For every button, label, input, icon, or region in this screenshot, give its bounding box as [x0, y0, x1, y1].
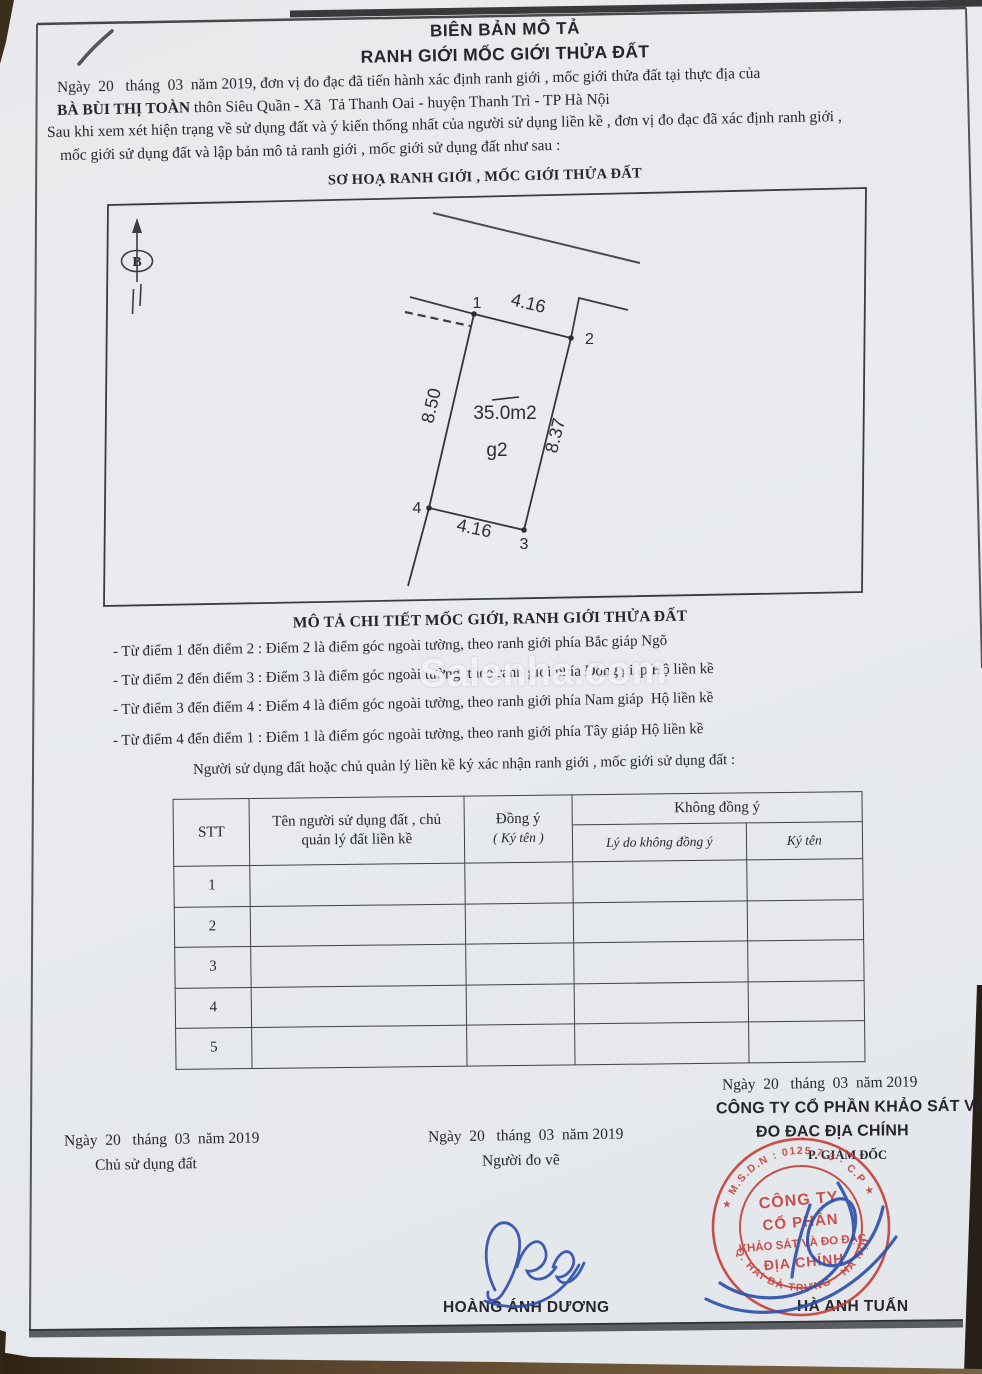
surveyor-signature-ink	[465, 1205, 590, 1315]
company-name-line1: CÔNG TY CỔ PHẦN KHẢO SÁT VÀ	[716, 1098, 982, 1119]
col-name-line1: Tên người sử dụng đất , chủ	[272, 812, 441, 830]
table-row-5: 5	[176, 1021, 865, 1069]
cell-name	[251, 985, 466, 1028]
neighbour-corner-line	[571, 298, 628, 338]
cell-reason	[575, 1022, 749, 1064]
parcel-id-label: g2	[486, 440, 507, 461]
col-name-line2: quản lý đất liền kề	[301, 831, 412, 848]
cell-agree	[465, 902, 574, 944]
col-header-name: Tên người sử dụng đất , chủquản lý đất l…	[249, 796, 464, 865]
cell-agree	[466, 1024, 575, 1066]
owner-sign-role: Chủ sử dụng đất	[95, 1155, 197, 1175]
point-label-2: 2	[585, 331, 594, 348]
col-header-sign: Ký tên	[746, 822, 863, 860]
point-label-1: 1	[473, 295, 482, 312]
wood-table-bottom-strip	[0, 1352, 982, 1374]
surveyor-sign-date: Ngày 20 tháng 03 năm 2019	[428, 1125, 624, 1146]
wood-table-top-left-corner	[0, 0, 14, 64]
point-label-3: 3	[520, 536, 529, 553]
row-number: 2	[174, 906, 251, 947]
corner-point-3	[521, 527, 527, 533]
cell-agree	[466, 983, 575, 1025]
cell-name	[251, 944, 466, 987]
frame-right	[966, 8, 982, 668]
company-sign-date: Ngày 20 tháng 03 năm 2019	[722, 1073, 918, 1094]
site-watermark: Salenha.com	[420, 648, 667, 696]
cell-sign	[748, 1021, 865, 1063]
pen-slash-mark	[79, 31, 112, 64]
row-number: 5	[176, 1028, 253, 1069]
cell-sign	[746, 859, 863, 901]
col-header-stt: STT	[173, 799, 250, 867]
boundary-approach-line	[410, 297, 474, 314]
edge-length-south: 4.16	[455, 515, 493, 542]
road-line	[433, 213, 640, 263]
land-owner-name: BÀ BÙI THỊ TOÀN	[57, 99, 190, 119]
owner-sign-date: Ngày 20 tháng 03 năm 2019	[64, 1129, 260, 1150]
cell-sign	[747, 899, 864, 941]
cell-agree	[465, 943, 574, 985]
row-number: 1	[174, 866, 251, 907]
cell-name	[250, 863, 465, 906]
row-number: 4	[175, 987, 252, 1028]
cell-sign	[747, 940, 864, 982]
cell-name	[250, 904, 465, 947]
surveyor-sign-role: Người đo vẽ	[482, 1151, 560, 1170]
cell-reason	[574, 941, 748, 983]
corner-point-2	[568, 335, 574, 341]
edge-length-west: 8.50	[417, 386, 444, 425]
neighbor-signature-table: STT Tên người sử dụng đất , chủquản lý đ…	[172, 791, 865, 1069]
boundary-dashed-line	[405, 312, 470, 326]
cell-sign	[748, 980, 865, 1022]
cell-reason	[573, 900, 747, 942]
cell-agree	[465, 862, 574, 904]
sketch-box-border	[104, 188, 866, 606]
col-header-agree: Đồng ý( Ký tên )	[464, 795, 573, 863]
scanned-document-photo: B 1 2 3 4 4.16 8.50 8.37 4.16 35.0m2 g2 …	[0, 0, 982, 1374]
edge-length-east: 8.37	[541, 416, 569, 455]
col-agree-line1: Đồng ý	[496, 811, 541, 828]
col-header-reason: Lý do không đồng ý	[572, 823, 746, 862]
row-number: 3	[175, 947, 252, 988]
corner-point-1	[471, 311, 477, 317]
director-signature-ink	[690, 1145, 920, 1315]
point-label-4: 4	[413, 500, 422, 517]
west-boundary-extension	[408, 508, 429, 586]
col-agree-line2: ( Ký tên )	[493, 830, 544, 846]
cell-name	[252, 1025, 467, 1068]
area-overbar	[492, 397, 519, 400]
parcel-area-label: 35.0m2	[473, 403, 536, 424]
background-right-edge	[964, 985, 982, 1374]
frame-left	[30, 24, 37, 1331]
corner-point-4	[426, 505, 432, 511]
north-label: B	[132, 255, 141, 270]
edge-length-north: 4.16	[509, 289, 548, 317]
cell-reason	[573, 860, 747, 902]
col-header-disagree: Không đồng ý	[572, 792, 862, 825]
cell-reason	[574, 981, 748, 1023]
